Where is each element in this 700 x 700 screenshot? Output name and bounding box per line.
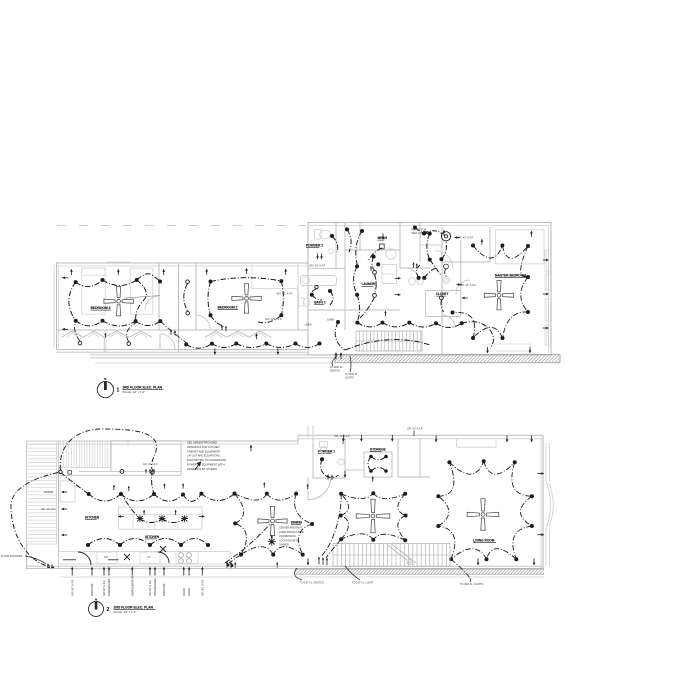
svg-text:FRIDGE: FRIDGE (44, 491, 53, 494)
svg-text:RATED FOR: RATED FOR (412, 228, 427, 232)
svg-text:BATH 2: BATH 2 (314, 301, 326, 305)
svg-text:GFI, 42" A.F.F.: GFI, 42" A.F.F. (143, 463, 158, 466)
svg-text:BEDROOM 3: BEDROOM 3 (91, 306, 111, 310)
svg-text:GFI, 42" A.F.F.: GFI, 42" A.F.F. (334, 435, 350, 438)
svg-text:KITCHEN: KITCHEN (145, 535, 160, 539)
svg-text:CABINET AND EQUIPMENT: CABINET AND EQUIPMENT (187, 449, 221, 453)
svg-text:DW: DW (104, 555, 109, 559)
svg-text:GFI, 42" A.F.F.: GFI, 42" A.F.F. (407, 428, 423, 431)
svg-text:GFI, 42" A.F.F.: GFI, 42" A.F.F. (41, 508, 57, 511)
svg-text:SCALE: 3/4" = 1'-0": SCALE: 3/4" = 1'-0" (114, 610, 137, 614)
svg-text:GFI, 42" A.F.F.: GFI, 42" A.F.F. (309, 264, 326, 268)
svg-text:2: 2 (107, 607, 110, 613)
svg-text:KITCHEN: KITCHEN (85, 516, 100, 520)
svg-text:POWDER 2: POWDER 2 (306, 244, 323, 248)
svg-text:GFI, 42" A.F.F.: GFI, 42" A.F.F. (70, 579, 74, 596)
svg-text:TO 3RD FL. LIGHTS: TO 3RD FL. LIGHTS (460, 583, 483, 586)
svg-text:DISHWASHER: DISHWASHER (107, 578, 111, 596)
svg-text:3RD FLOOR ELEC. PLAN: 3RD FLOOR ELEC. PLAN (123, 386, 163, 390)
svg-text:LAYOUT AND ELEVATIONS.: LAYOUT AND ELEVATIONS. (187, 454, 221, 458)
svg-text:LIVING ROOM: LIVING ROOM (473, 539, 495, 543)
svg-text:CENTER PENDANT: CENTER PENDANT (279, 527, 302, 530)
svg-text:LIGHTS: LIGHTS (345, 376, 354, 379)
svg-text:OWNER: OWNER (279, 544, 289, 547)
svg-text:HOOD: HOOD (187, 588, 191, 596)
svg-text:SEE OWNER-PROVIDED: SEE OWNER-PROVIDED (187, 441, 217, 445)
svg-text:DISHWASHER: DISHWASHER (153, 578, 157, 596)
svg-text:DRAWINGS FOR KITCHEN: DRAWINGS FOR KITCHEN (187, 445, 220, 449)
svg-text:DISPOSAL: DISPOSAL (162, 582, 166, 596)
svg-text:TO 1ST FL. SWITCH: TO 1ST FL. SWITCH (300, 582, 324, 585)
svg-text:1: 1 (117, 387, 120, 393)
svg-text:HOOD: HOOD (182, 588, 186, 596)
svg-text:DINING: DINING (291, 521, 303, 525)
svg-text:POWER TO EQUIPMENT WITH: POWER TO EQUIPMENT WITH (187, 463, 225, 467)
svg-text:LINEN: LINEN (305, 324, 312, 327)
svg-text:GFI, 42" A.F.F.: GFI, 42" A.F.F. (265, 317, 282, 321)
svg-text:2ND FLOOR ELEC. PLAN: 2ND FLOOR ELEC. PLAN (114, 605, 154, 609)
svg-text:BEDROOM 2: BEDROOM 2 (218, 305, 238, 309)
svg-text:ELECTRICIAN TO COORDINATE: ELECTRICIAN TO COORDINATE (187, 458, 226, 462)
svg-text:TO 1ST FL. LIGHT: TO 1ST FL. LIGHT (352, 582, 373, 585)
svg-text:LAUNDRY: LAUNDRY (362, 282, 378, 286)
svg-text:SWITCH: SWITCH (330, 369, 340, 372)
svg-text:GFI, 42" A.F.F.: GFI, 42" A.F.F. (276, 292, 293, 296)
svg-text:FLOOR SWITCHES: FLOOR SWITCHES (1, 555, 23, 558)
svg-text:COORDINATE: COORDINATE (279, 535, 296, 538)
svg-text:N: N (104, 377, 106, 381)
svg-text:LOCATION WITH: LOCATION WITH (279, 539, 299, 542)
svg-text:OV: OV (147, 555, 151, 559)
svg-text:DISPOSAL: DISPOSAL (90, 582, 94, 596)
svg-text:LINEN: LINEN (327, 319, 334, 322)
svg-text:CLOSET: CLOSET (436, 292, 449, 296)
svg-text:STORAGE: STORAGE (370, 447, 386, 451)
svg-text:DRAWINGS BY OTHERS.: DRAWINGS BY OTHERS. (187, 467, 218, 471)
svg-text:MASTER BEDROOM: MASTER BEDROOM (495, 274, 526, 278)
svg-text:GFI 42" A.F.F.: GFI 42" A.F.F. (148, 580, 152, 596)
svg-text:REFRIGERATOR: REFRIGERATOR (130, 576, 134, 596)
svg-text:GFI, 42" A.F.F.: GFI, 42" A.F.F. (200, 579, 204, 596)
svg-text:N: N (95, 598, 97, 602)
svg-text:SCALE: 3/4" = 1'-0": SCALE: 3/4" = 1'-0" (123, 390, 146, 394)
svg-text:GFI 42" A.F.F.: GFI 42" A.F.F. (102, 580, 106, 596)
